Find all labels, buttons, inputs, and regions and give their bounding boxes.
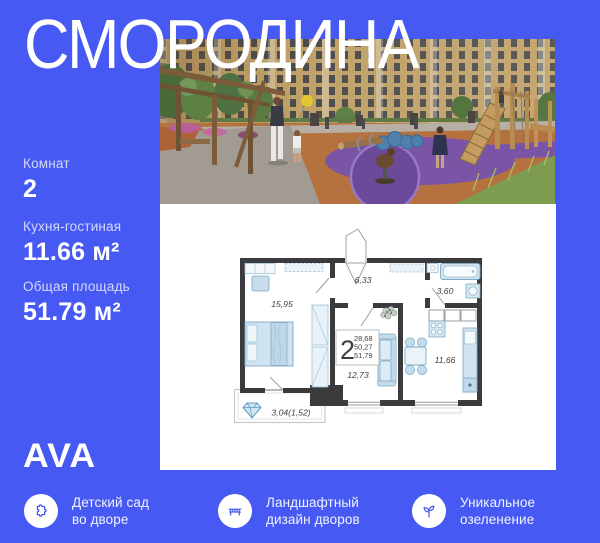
developer-logo: AVA <box>23 437 96 476</box>
dining-table <box>405 338 427 375</box>
spec-label: Комнат <box>23 156 70 171</box>
spec-value: 51.79 м² <box>23 298 130 327</box>
feature-text: Ландшафтный дизайн дворов <box>266 494 360 528</box>
spec-value: 11.66 м² <box>23 238 121 267</box>
sofa <box>378 334 397 386</box>
spec-total-area: Общая площадь 51.79 м² <box>23 279 130 327</box>
bed <box>245 322 293 366</box>
bathroom-area: 3,60 <box>437 286 454 296</box>
doors <box>270 229 445 390</box>
svg-text:51,79: 51,79 <box>354 351 373 360</box>
spec-label: Кухня-гостиная <box>23 219 121 234</box>
plant-icon <box>381 306 397 319</box>
washing-machine <box>466 284 480 298</box>
feature-text: Детский сад во дворе <box>72 494 149 528</box>
kitchen-area: 11,66 <box>435 355 456 365</box>
hallway-area: 6,33 <box>355 275 372 285</box>
feature-greenery: Уникальное озеленение <box>412 494 535 528</box>
spec-label: Общая площадь <box>23 279 130 294</box>
floorplan: 3,04(1,52) <box>233 226 503 455</box>
spec-value: 2 <box>23 175 70 204</box>
spec-kitchen-living: Кухня-гостиная 11.66 м² <box>23 219 121 267</box>
feature-landscape: Ландшафтный дизайн дворов <box>218 494 360 528</box>
entrance-door <box>346 229 366 263</box>
rooms-count: 2 <box>340 335 355 365</box>
bedroom-furniture <box>245 264 328 388</box>
dresser <box>245 264 275 274</box>
hall-shelf <box>390 264 423 272</box>
sprout-icon <box>412 494 446 528</box>
shelf <box>285 264 323 272</box>
feature-kindergarten: Детский сад во дворе <box>24 494 149 528</box>
bathroom-fixtures <box>427 264 480 299</box>
summary-box: 2 28,68 50,27 51,79 <box>336 330 379 365</box>
stove <box>429 321 445 337</box>
tv <box>252 276 269 291</box>
feature-text: Уникальное озеленение <box>460 494 535 528</box>
kitchen-furniture <box>405 310 477 392</box>
counter <box>463 328 477 392</box>
spec-rooms: Комнат 2 <box>23 156 70 204</box>
bathtub <box>441 264 481 280</box>
climbing-kid <box>499 91 504 96</box>
floorplan-card: 3,04(1,52) <box>160 204 556 470</box>
promo-card: СМОРОДИНА <box>0 0 600 543</box>
balcony-area: 3,04(1,52) <box>271 408 310 418</box>
puzzle-icon <box>24 494 58 528</box>
bedroom-area: 15,95 <box>271 299 293 309</box>
bench-icon <box>218 494 252 528</box>
complex-title: СМОРОДИНА <box>24 9 418 79</box>
living-area: 12,73 <box>347 370 369 380</box>
wardrobe <box>312 305 328 387</box>
yellow-balloon <box>301 95 313 107</box>
